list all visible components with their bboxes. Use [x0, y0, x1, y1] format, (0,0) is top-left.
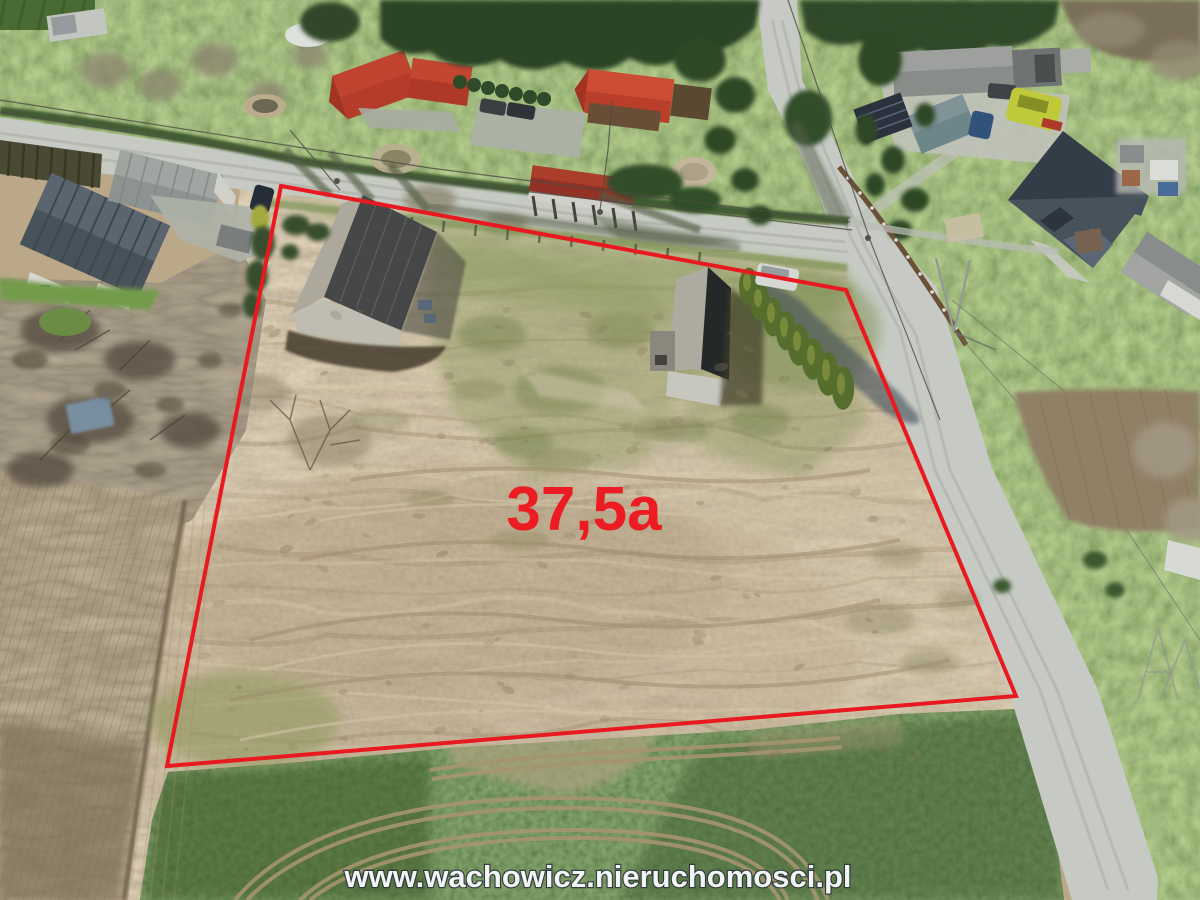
svg-text:37,5a: 37,5a	[506, 475, 662, 544]
svg-text:www.wachowicz.nieruchomosci.pl: www.wachowicz.nieruchomosci.pl	[343, 859, 851, 894]
